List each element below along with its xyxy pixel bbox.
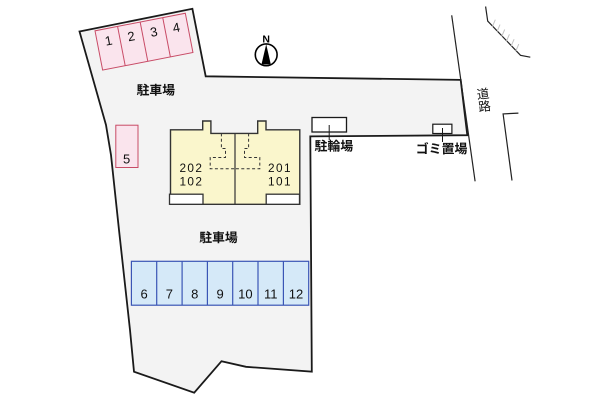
- svg-text:201: 201: [268, 161, 292, 175]
- svg-text:7: 7: [166, 287, 173, 302]
- svg-text:202: 202: [179, 161, 203, 175]
- svg-text:9: 9: [216, 287, 223, 302]
- svg-text:10: 10: [238, 287, 252, 302]
- svg-text:6: 6: [140, 287, 147, 302]
- svg-text:N: N: [262, 34, 270, 46]
- svg-text:5: 5: [123, 151, 130, 166]
- svg-text:8: 8: [191, 287, 198, 302]
- svg-text:11: 11: [264, 287, 278, 302]
- svg-text:101: 101: [268, 175, 292, 189]
- svg-text:12: 12: [289, 287, 303, 302]
- svg-text:102: 102: [179, 175, 203, 189]
